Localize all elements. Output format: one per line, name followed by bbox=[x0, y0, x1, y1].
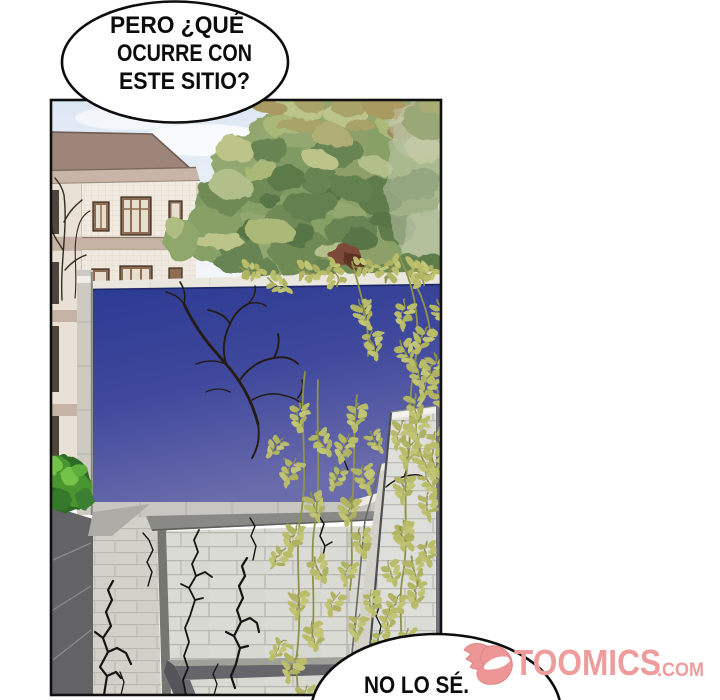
svg-text:NO LO SÉ.: NO LO SÉ. bbox=[364, 671, 469, 699]
svg-text:ESTE SITIO?: ESTE SITIO? bbox=[119, 68, 250, 95]
svg-text:OCURRE CON: OCURRE CON bbox=[117, 40, 252, 67]
svg-text:TOOMICS: TOOMICS bbox=[514, 642, 661, 683]
svg-text:PERO ¿QUÉ: PERO ¿QUÉ bbox=[110, 11, 244, 39]
svg-text:.COM: .COM bbox=[657, 660, 704, 681]
